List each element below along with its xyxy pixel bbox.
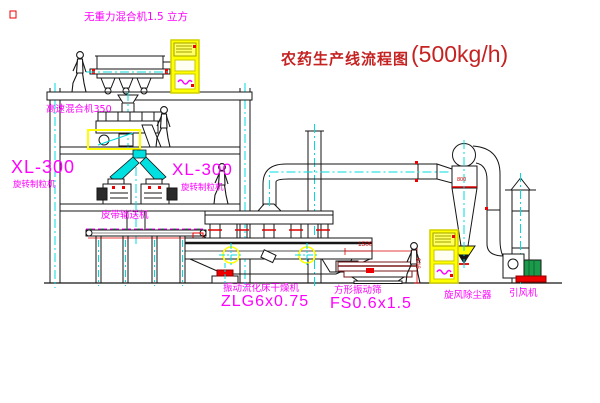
cyclone-label: 旋风除尘器 [444, 291, 492, 301]
spring-mounts [208, 224, 330, 238]
y-chute [110, 150, 166, 183]
induced-draft-fan [503, 254, 546, 282]
granulator-left [97, 179, 131, 204]
granulator-right-model: XL-300 [172, 161, 233, 178]
fan-base [516, 276, 546, 282]
fan-motor [524, 260, 541, 276]
dryer-model-label: ZLG6x0.75 [221, 294, 309, 310]
gravity-mixer-label: 无重力混合机1.5 立方 [84, 12, 188, 23]
belt-conveyor-label: 皮带输送机 [101, 211, 149, 221]
control-cabinet-upper [171, 40, 199, 93]
control-cabinet-lower [430, 230, 458, 283]
duct-centerline [270, 172, 453, 206]
cad-drawing-canvas: 农药生产线流程图 (500kg/h) 无重力混合机1.5 立方 高速混合机350… [0, 0, 600, 403]
granulator-right-name: 旋转制粒机 [181, 184, 224, 193]
drawing-title: 农药生产线流程图 (500kg/h) [281, 41, 508, 69]
screen-length-dimension: 1500 [358, 242, 372, 249]
high-speed-mixer-label: 高速混合机350 [46, 105, 112, 115]
fan-label: 引风机 [509, 289, 538, 299]
return-duct [473, 146, 526, 269]
dryer-exhaust-duct [258, 161, 452, 211]
red-marker [10, 11, 16, 18]
conveyor-support-centerlines [99, 240, 183, 286]
conveyor-supports [96, 236, 185, 283]
granulator-right [141, 179, 177, 204]
screen-model-label: FS0.6x1.5 [330, 296, 412, 312]
granulator-left-model: XL-300 [11, 158, 75, 176]
belt-conveyor [86, 229, 206, 238]
title-text: 农药生产线流程图 [281, 48, 409, 69]
title-capacity: (500kg/h) [411, 41, 508, 68]
cyclone-diameter-dimension: 800 [457, 178, 466, 184]
granulator-left-name: 旋转制粒机 [13, 181, 56, 190]
vibrating-screen [336, 261, 417, 284]
person-top-floor [72, 52, 86, 92]
screen-height-dimension: 946 [414, 258, 421, 269]
